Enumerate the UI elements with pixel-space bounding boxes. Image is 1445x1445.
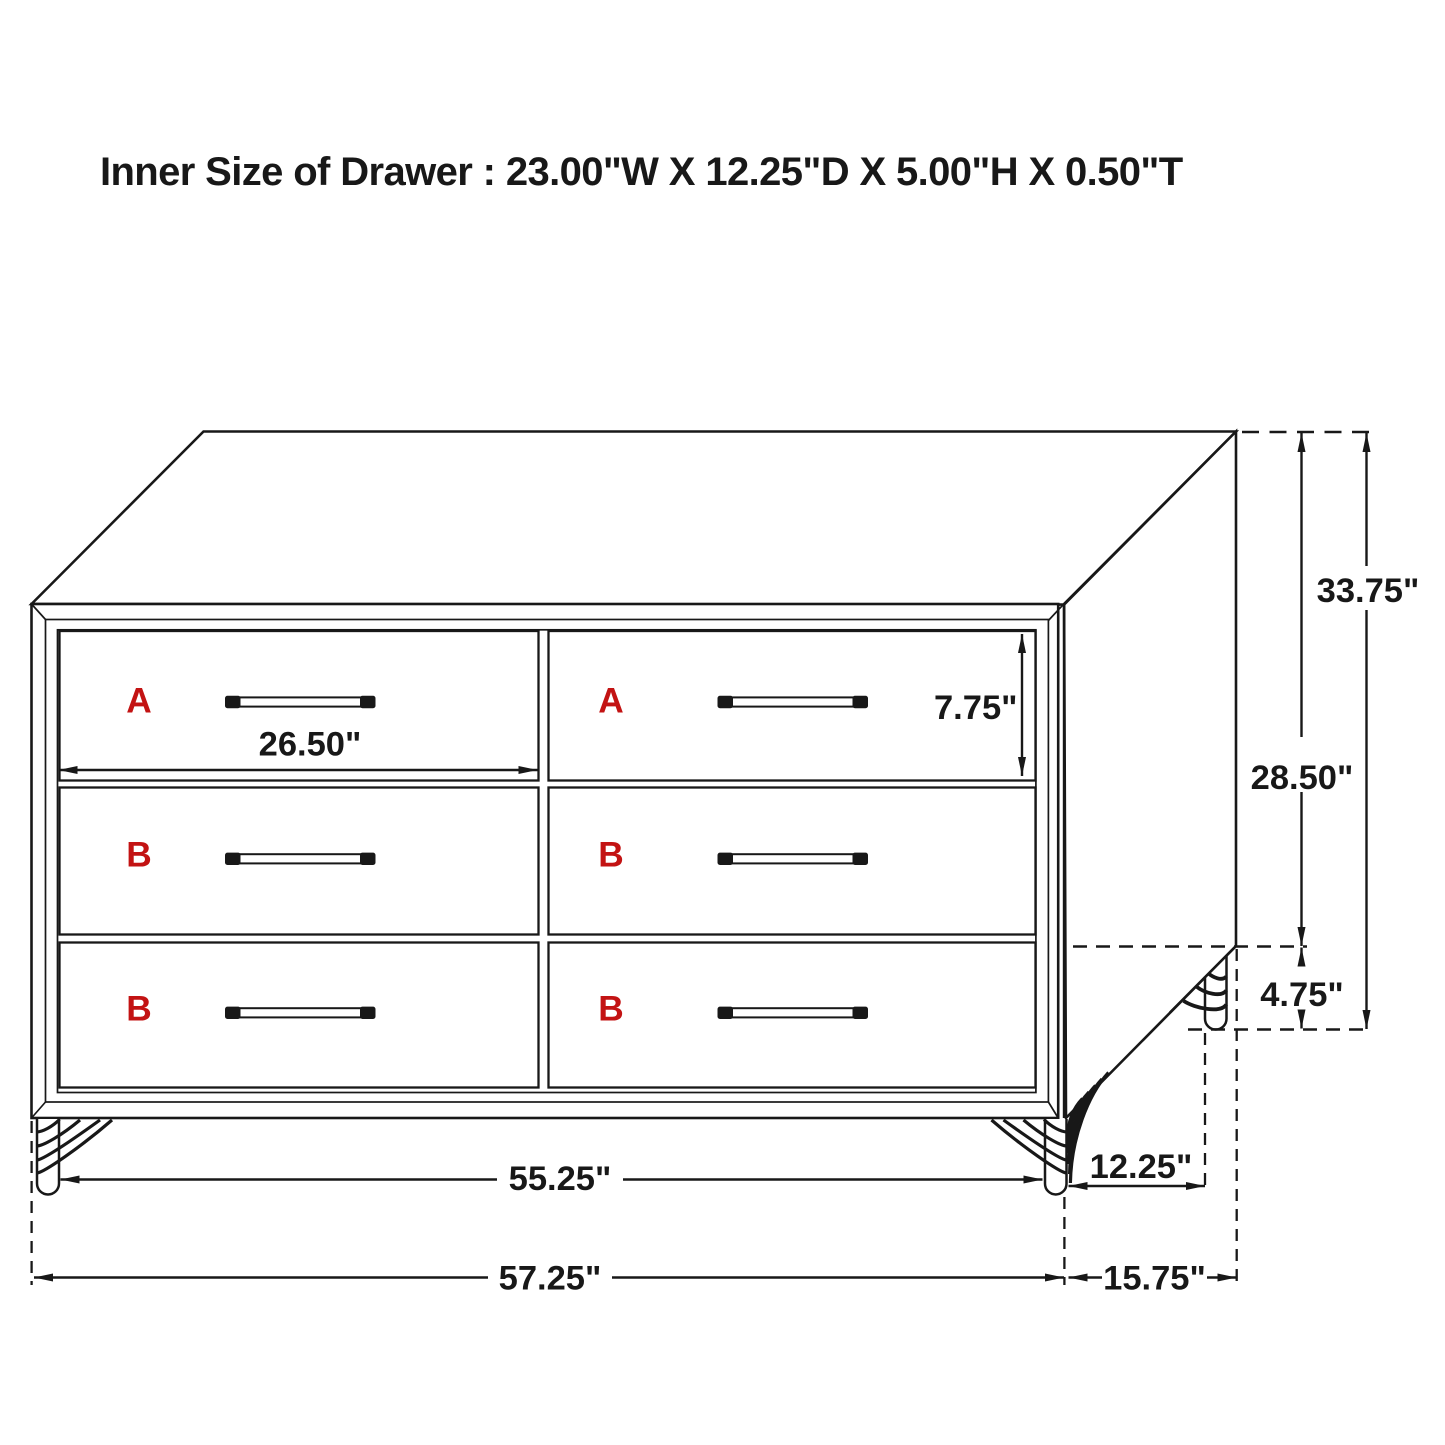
svg-text:55.25": 55.25" — [509, 1160, 612, 1198]
svg-text:B: B — [126, 990, 152, 1029]
svg-text:26.50": 26.50" — [259, 726, 362, 764]
svg-text:A: A — [126, 682, 152, 721]
svg-text:Inner Size of Drawer : 23.00"W: Inner Size of Drawer : 23.00"W X 12.25"D… — [100, 150, 1183, 194]
svg-text:B: B — [126, 836, 152, 875]
svg-text:B: B — [598, 990, 624, 1029]
svg-text:33.75": 33.75" — [1317, 572, 1420, 610]
svg-text:4.75": 4.75" — [1260, 976, 1344, 1014]
svg-text:15.75": 15.75" — [1103, 1260, 1206, 1298]
svg-text:A: A — [598, 682, 624, 721]
svg-text:28.50": 28.50" — [1251, 759, 1354, 797]
svg-text:7.75": 7.75" — [934, 689, 1018, 727]
svg-text:57.25": 57.25" — [499, 1260, 602, 1298]
svg-text:12.25": 12.25" — [1090, 1148, 1193, 1186]
svg-text:B: B — [598, 836, 624, 875]
